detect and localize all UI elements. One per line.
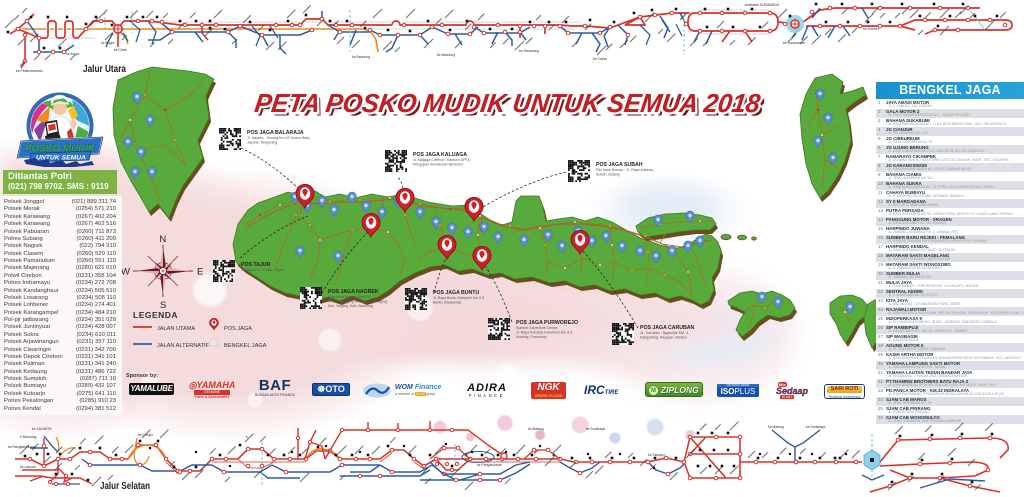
svg-text:ke Malang: ke Malang — [528, 427, 544, 431]
svg-text:JL. Caruban - Ngawi/pir KM. 4,: JL. Caruban - Ngawi/pir KM. 4, — [640, 331, 689, 335]
svg-text:Rest Area Nagreg PasirPR,: Rest Area Nagreg PasirPR, — [328, 295, 372, 299]
svg-text:Andong, Purworejo: Andong, Purworejo — [516, 335, 547, 339]
svg-text:Kec. Nagreg, Kab. Bandung: Kec. Nagreg, Kab. Bandung — [328, 304, 373, 308]
svg-text:W: W — [121, 266, 130, 277]
svg-text:ke Surabaya: ke Surabaya — [586, 427, 605, 431]
svg-text:ke Pangandaran: ke Pangandaran — [477, 463, 502, 467]
svg-text:Jayanti, Tangerang: Jayanti, Tangerang — [247, 141, 277, 145]
svg-text:Jl. Raya Buntu-Sampluh Km 0.5: Jl. Raya Buntu-Sampluh Km 0.5 — [433, 296, 484, 300]
svg-text:ke Rangkasbitung: ke Rangkasbitung — [8, 445, 35, 449]
svg-text:Kaligunting, Mejayan, Madiun: Kaligunting, Mejayan, Madiun — [640, 336, 687, 340]
svg-text:Jl. Ciawi Km 9 Tajur, Bogor: Jl. Ciawi Km 9 Tajur, Bogor — [241, 268, 285, 272]
svg-text:Jl. Jakarta - Serang Km 02 Sum: Jl. Jakarta - Serang Km 02 Sumur Batu, — [247, 136, 311, 140]
svg-text:ke Bandung: ke Bandung — [20, 435, 248, 439]
svg-text:Buntu, Banyumas: Buntu, Banyumas — [433, 301, 462, 305]
svg-text:ke Sidoarjo: ke Sidoarjo — [648, 453, 665, 457]
svg-text:Subah, Batang: Subah, Batang — [596, 173, 620, 177]
svg-text:ke Cianjur: ke Cianjur — [138, 433, 154, 437]
svg-text:N: N — [159, 234, 166, 245]
svg-text:ke Labuan: ke Labuan — [20, 465, 36, 469]
svg-text:POS JAGA: POS JAGA — [224, 326, 252, 332]
svg-text:ke JAKARTA: ke JAKARTA — [32, 427, 52, 431]
svg-text:BENGKEL JAGA: BENGKEL JAGA — [224, 343, 267, 349]
svg-text:Pengujian Kendaraan Bermotor: Pengujian Kendaraan Bermotor — [413, 163, 464, 167]
svg-text:JALAN ALTERNATIF: JALAN ALTERNATIF — [157, 343, 210, 349]
svg-text:Jl. Raya Nagreg Km 38 Desa Nag: Jl. Raya Nagreg Km 38 Desa Nagreg — [328, 300, 387, 304]
svg-text:Jalur Selatan: Jalur Selatan — [100, 481, 150, 492]
svg-text:Jl. Kalijaga Cirebon - Kantorn: Jl. Kalijaga Cirebon - Kantorn UPTD — [413, 158, 471, 162]
svg-text:Sumber Adventure Center,: Sumber Adventure Center, — [516, 326, 558, 330]
svg-text:ke Surabaya: ke Surabaya — [806, 425, 825, 429]
svg-text:JALAN UTAMA: JALAN UTAMA — [157, 326, 195, 332]
svg-text:Jl. Raya Kutoarjo Kebumen Km 4: Jl. Raya Kutoarjo Kebumen Km 4.5, — [516, 331, 573, 335]
svg-text:LEGENDA: LEGENDA — [133, 310, 178, 320]
svg-text:RM Sami Roman - Jl. Raya Adinu: RM Sami Roman - Jl. Raya Adinuso, — [596, 168, 654, 172]
svg-text:E: E — [197, 266, 203, 277]
svg-text:ke Malang: ke Malang — [768, 425, 784, 429]
